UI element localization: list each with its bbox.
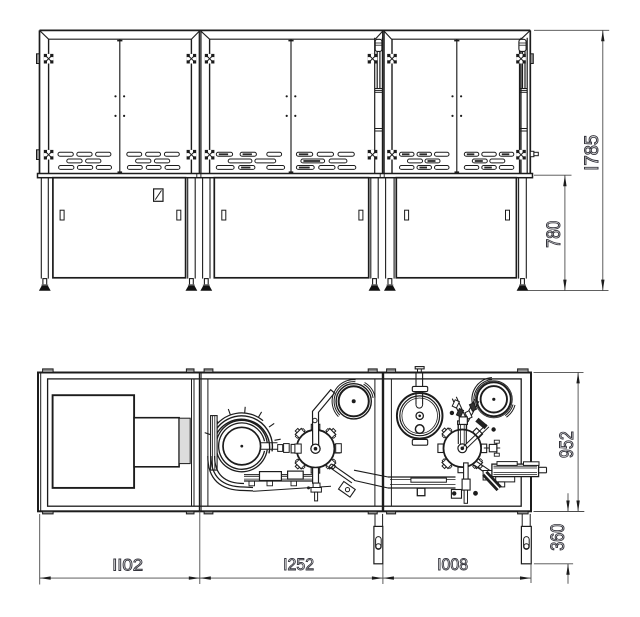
svg-text:Ι252: Ι252 xyxy=(283,556,314,574)
svg-text:952: 952 xyxy=(557,431,578,458)
svg-text:Ι785: Ι785 xyxy=(582,135,603,171)
svg-text:ΙΙ02: ΙΙ02 xyxy=(112,557,143,575)
svg-text:Ι008: Ι008 xyxy=(437,556,468,574)
svg-text:360: 360 xyxy=(548,524,569,551)
svg-text:780: 780 xyxy=(544,221,565,248)
